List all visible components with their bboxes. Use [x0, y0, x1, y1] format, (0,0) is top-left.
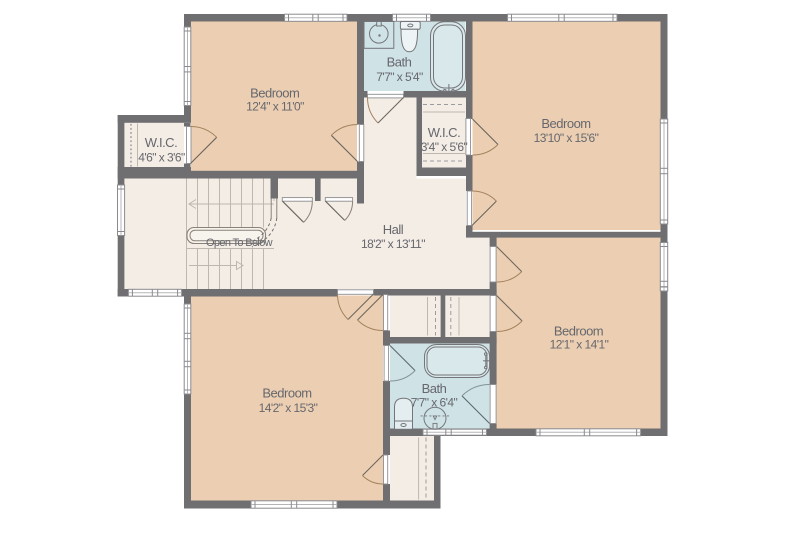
svg-text:18'2" x 13'11": 18'2" x 13'11" — [361, 237, 425, 251]
svg-text:7'7" x 6'4": 7'7" x 6'4" — [411, 396, 458, 410]
svg-text:Bath: Bath — [422, 381, 447, 396]
svg-text:13'10" x 15'6": 13'10" x 15'6" — [534, 131, 599, 145]
svg-text:Bedroom: Bedroom — [541, 116, 590, 131]
svg-text:Bath: Bath — [387, 55, 412, 70]
svg-text:12'1" x 14'1": 12'1" x 14'1" — [550, 337, 609, 351]
svg-text:W.I.C.: W.I.C. — [145, 135, 177, 150]
svg-text:3'4" x 5'6": 3'4" x 5'6" — [421, 140, 468, 154]
svg-text:Open To Below: Open To Below — [206, 237, 273, 249]
svg-text:Hall: Hall — [383, 222, 404, 237]
svg-text:12'4" x 11'0": 12'4" x 11'0" — [246, 99, 304, 113]
svg-text:Bedroom: Bedroom — [554, 323, 603, 338]
svg-text:4'6" x 3'6": 4'6" x 3'6" — [138, 151, 185, 165]
svg-text:14'2" x 15'3": 14'2" x 15'3" — [259, 401, 318, 415]
svg-text:7'7" x 5'4": 7'7" x 5'4" — [376, 70, 423, 84]
svg-text:Bedroom: Bedroom — [262, 386, 311, 401]
svg-text:W.I.C.: W.I.C. — [428, 125, 460, 140]
